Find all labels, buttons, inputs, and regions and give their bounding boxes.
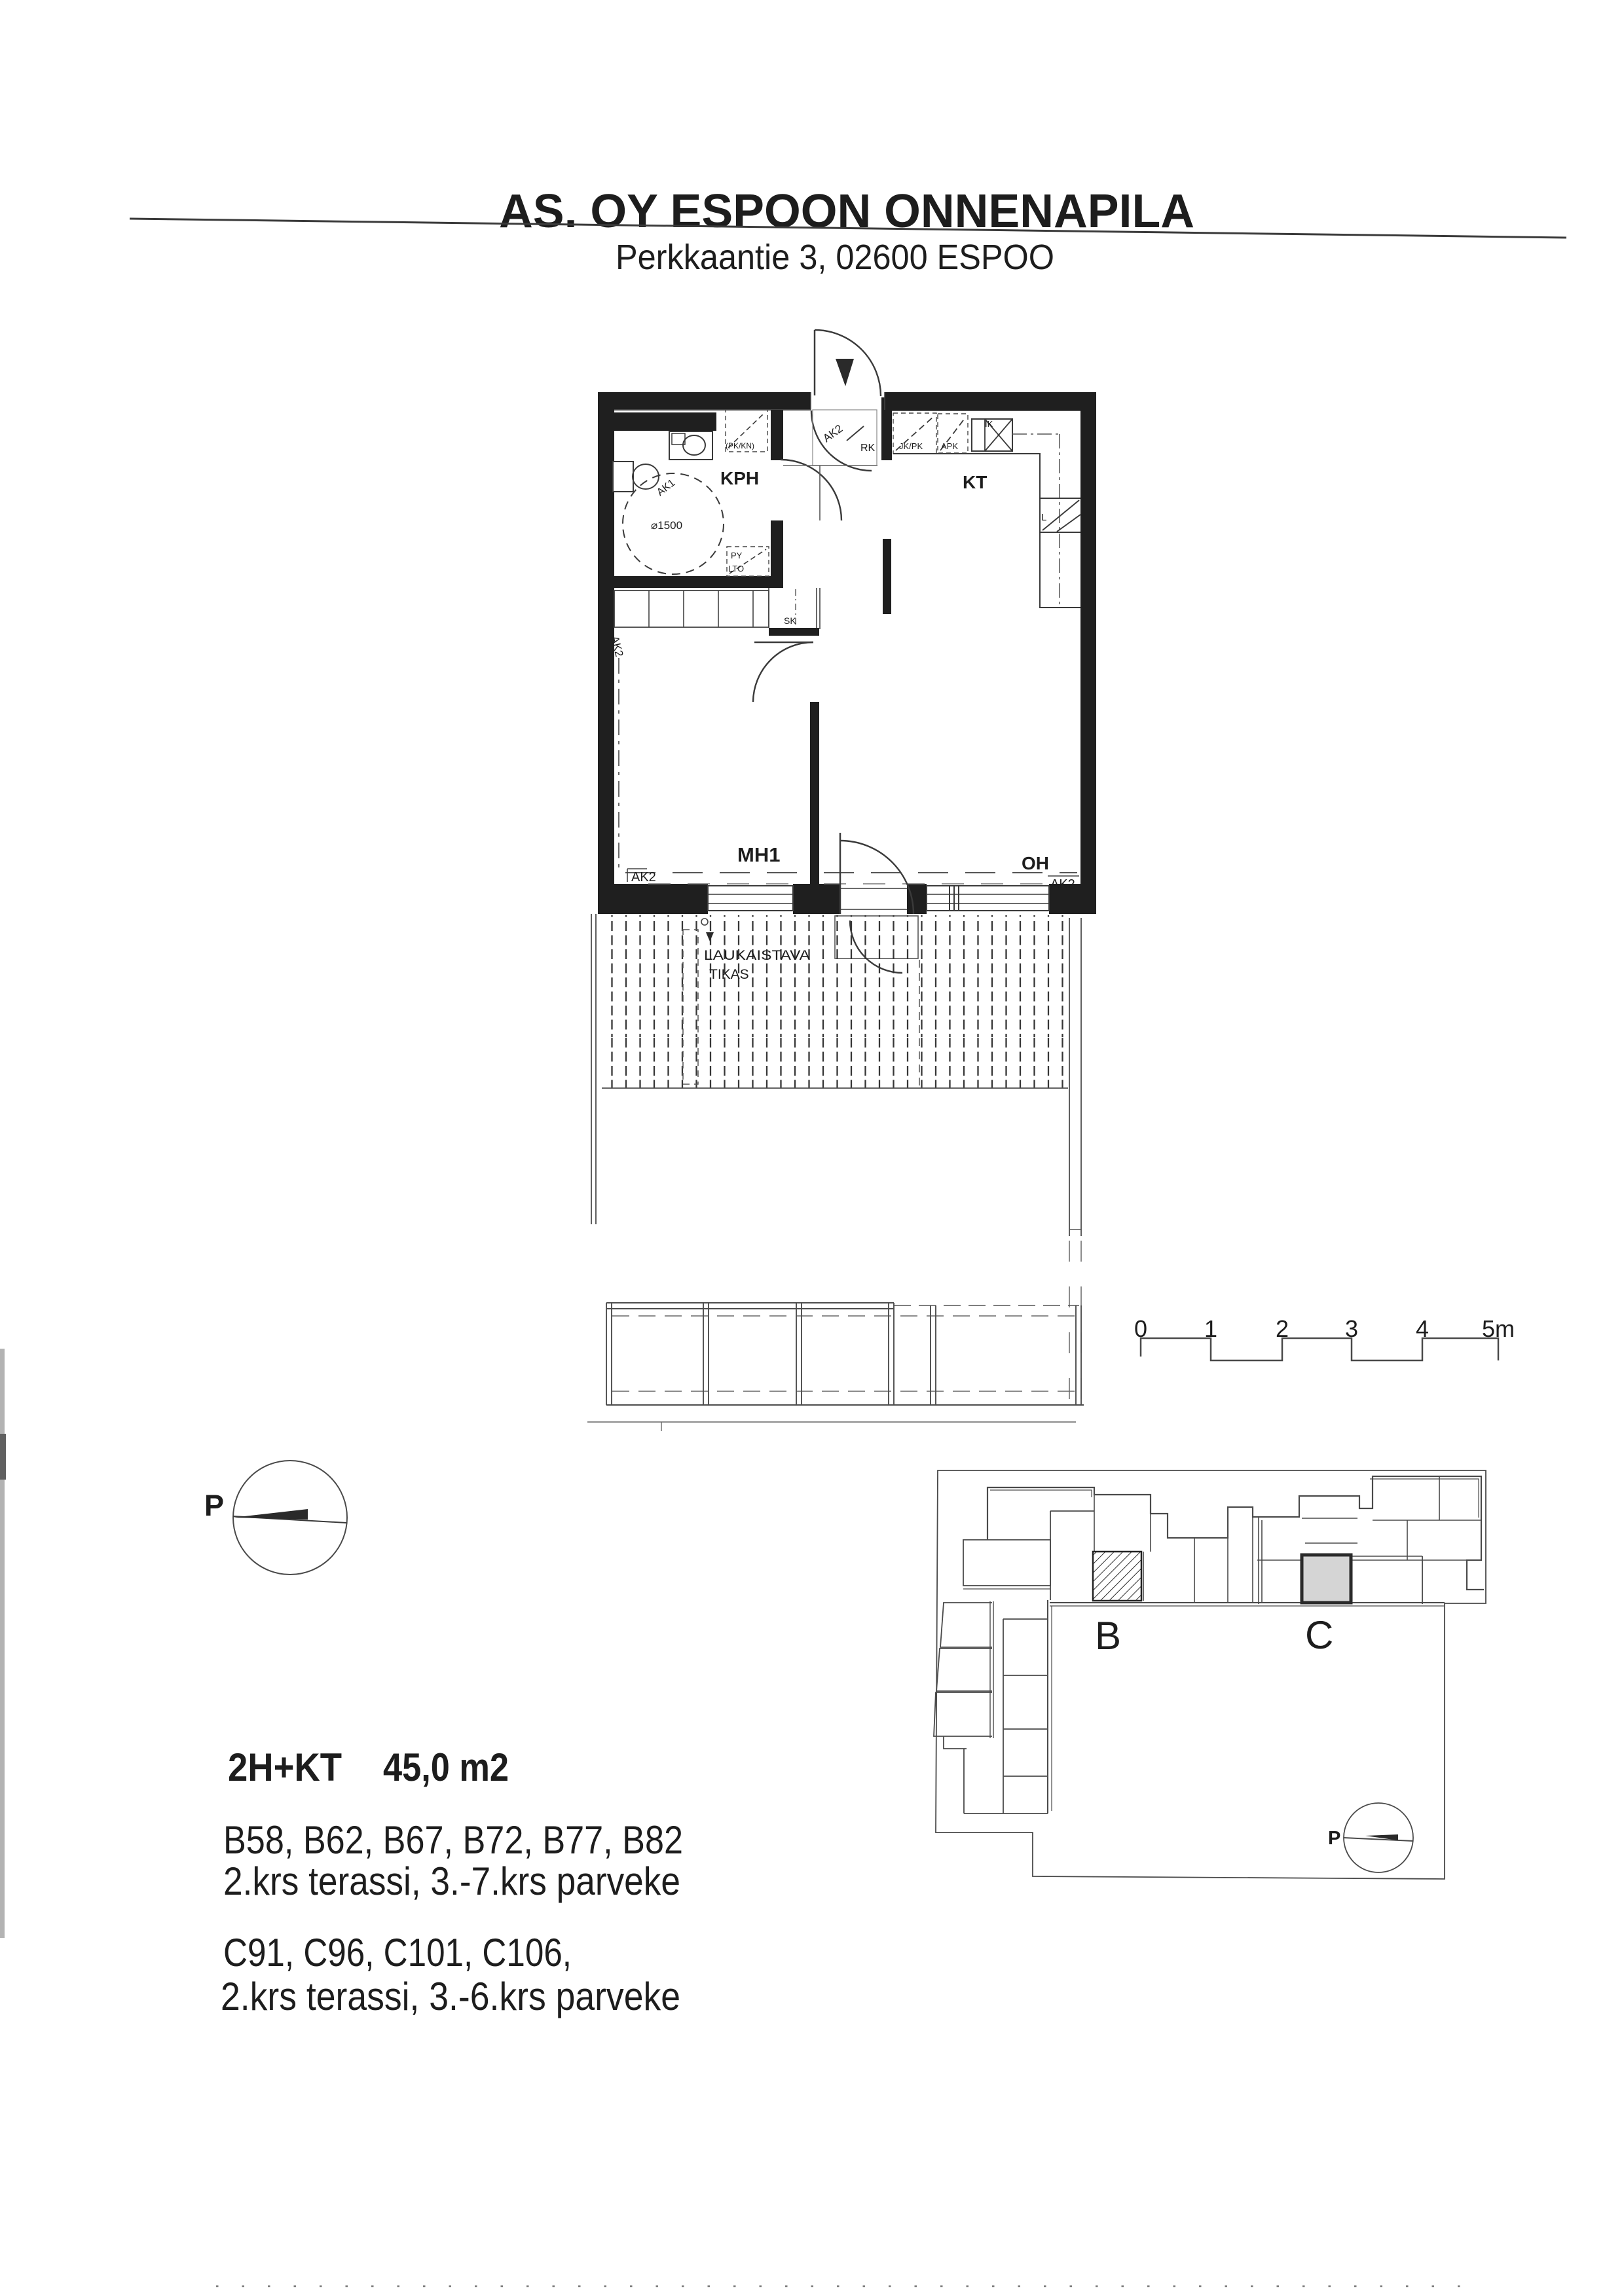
svg-text:SK: SK (784, 615, 796, 626)
svg-text:(PK/KN): (PK/KN) (726, 441, 754, 450)
svg-text:TIKAS: TIKAS (709, 967, 749, 982)
svg-text:⌀1500: ⌀1500 (651, 519, 682, 532)
svg-text:C: C (1305, 1613, 1333, 1657)
svg-text:OH: OH (1022, 853, 1049, 873)
svg-text:2: 2 (1276, 1315, 1289, 1342)
svg-text:AK2: AK2 (1050, 877, 1075, 892)
svg-text:2.krs terassi, 3.-7.krs parvek: 2.krs terassi, 3.-7.krs parveke (223, 1859, 680, 1903)
svg-text:MH1: MH1 (737, 843, 780, 866)
svg-text:AK2: AK2 (631, 870, 656, 884)
svg-text:C91, C96, C101, C106,: C91, C96, C101, C106, (223, 1931, 572, 1975)
svg-text:RK: RK (860, 443, 876, 454)
svg-text:IK: IK (985, 419, 993, 429)
svg-text:B58, B62, B67, B72, B77, B82: B58, B62, B67, B72, B77, B82 (223, 1818, 683, 1862)
svg-text:JK/PK: JK/PK (899, 441, 923, 451)
svg-text:1: 1 (1204, 1315, 1217, 1342)
svg-text:KT: KT (963, 472, 987, 492)
svg-text:Perkkaantie 3, 02600 ESPOO: Perkkaantie 3, 02600 ESPOO (616, 238, 1054, 277)
svg-text:LAUKAISTAVA: LAUKAISTAVA (704, 948, 810, 963)
svg-text:0: 0 (1134, 1315, 1147, 1342)
svg-text:3: 3 (1345, 1315, 1358, 1342)
svg-text:AS. OY ESPOON ONNENAPILA: AS. OY ESPOON ONNENAPILA (499, 185, 1194, 238)
svg-text:KPH: KPH (720, 468, 759, 488)
svg-text:2.krs terassi, 3.-6.krs parvek: 2.krs terassi, 3.-6.krs parveke (221, 1975, 680, 2018)
svg-text:P: P (1328, 1828, 1340, 1849)
svg-text:5m: 5m (1482, 1315, 1515, 1342)
svg-text:P: P (204, 1489, 224, 1522)
svg-text:APK: APK (941, 441, 958, 451)
svg-text:2H+KT: 2H+KT (228, 1745, 342, 1789)
svg-text:B: B (1095, 1614, 1121, 1658)
svg-text:45,0 m2: 45,0 m2 (383, 1745, 509, 1789)
svg-text:LTO: LTO (728, 564, 744, 574)
svg-text:L: L (1041, 512, 1046, 523)
svg-text:PY: PY (731, 551, 743, 560)
svg-text:4: 4 (1416, 1315, 1429, 1342)
